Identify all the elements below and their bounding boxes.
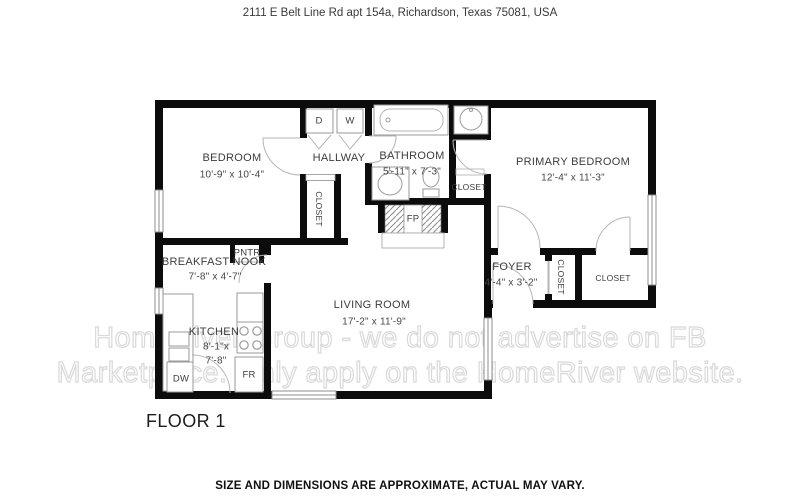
floorplan-svg xyxy=(0,0,800,499)
hearth xyxy=(382,233,444,248)
floorplan xyxy=(0,0,800,499)
dryer-box xyxy=(306,109,333,133)
washer-box xyxy=(337,109,363,133)
fridge-box xyxy=(235,357,263,392)
fixtures xyxy=(163,105,488,392)
primary-sink xyxy=(454,106,488,134)
toilet xyxy=(423,167,439,197)
dishwasher-box xyxy=(167,362,193,392)
stove xyxy=(237,293,263,353)
doors xyxy=(192,135,630,393)
walls xyxy=(155,100,656,399)
kitchen-sink xyxy=(169,332,189,346)
bathtub xyxy=(374,105,448,135)
kitchen-counter xyxy=(163,294,193,392)
bathroom-sink xyxy=(372,167,409,200)
fireplace xyxy=(382,205,444,248)
bedroom-closet-door xyxy=(306,175,335,181)
